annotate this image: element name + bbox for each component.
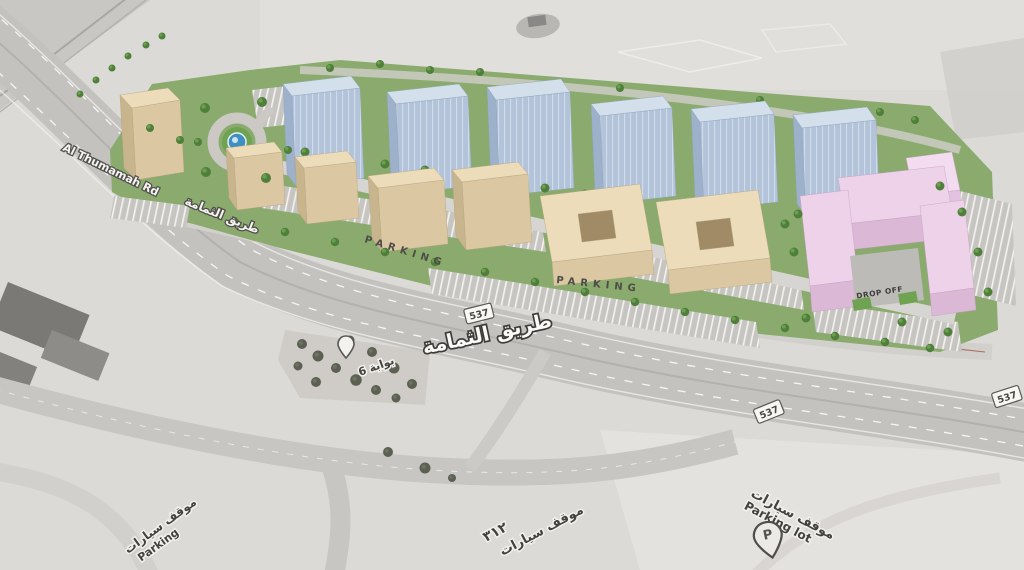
masterplan-render: Al Thumamah Rd طريق الثمامة طريق الثمامة… xyxy=(0,0,1024,570)
ramp-south xyxy=(332,468,341,570)
beige-block-2 xyxy=(295,151,359,224)
courtyard-building-2 xyxy=(656,190,772,294)
site-map-canvas: Al Thumamah Rd طريق الثمامة طريق الثمامة… xyxy=(0,0,1024,570)
beige-block-4 xyxy=(452,162,532,250)
beige-tower-left xyxy=(120,88,184,180)
courtyard-building-1 xyxy=(540,184,654,286)
beige-block-1 xyxy=(226,142,285,210)
drop-off-court xyxy=(850,248,924,311)
